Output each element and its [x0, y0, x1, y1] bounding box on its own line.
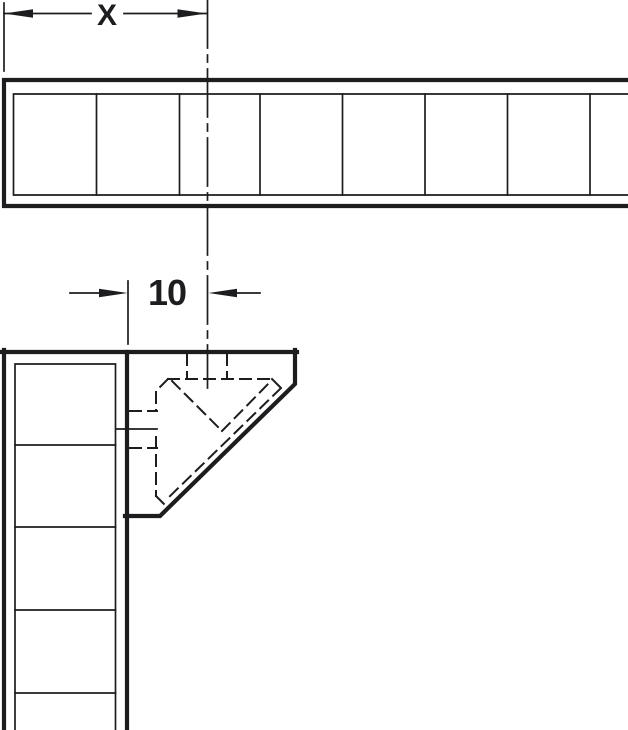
canvas-background	[0, 0, 628, 730]
dimension-x-label: X	[97, 0, 117, 32]
dimension-10-label: 10	[148, 272, 186, 313]
technical-drawing: X 10	[0, 0, 628, 730]
